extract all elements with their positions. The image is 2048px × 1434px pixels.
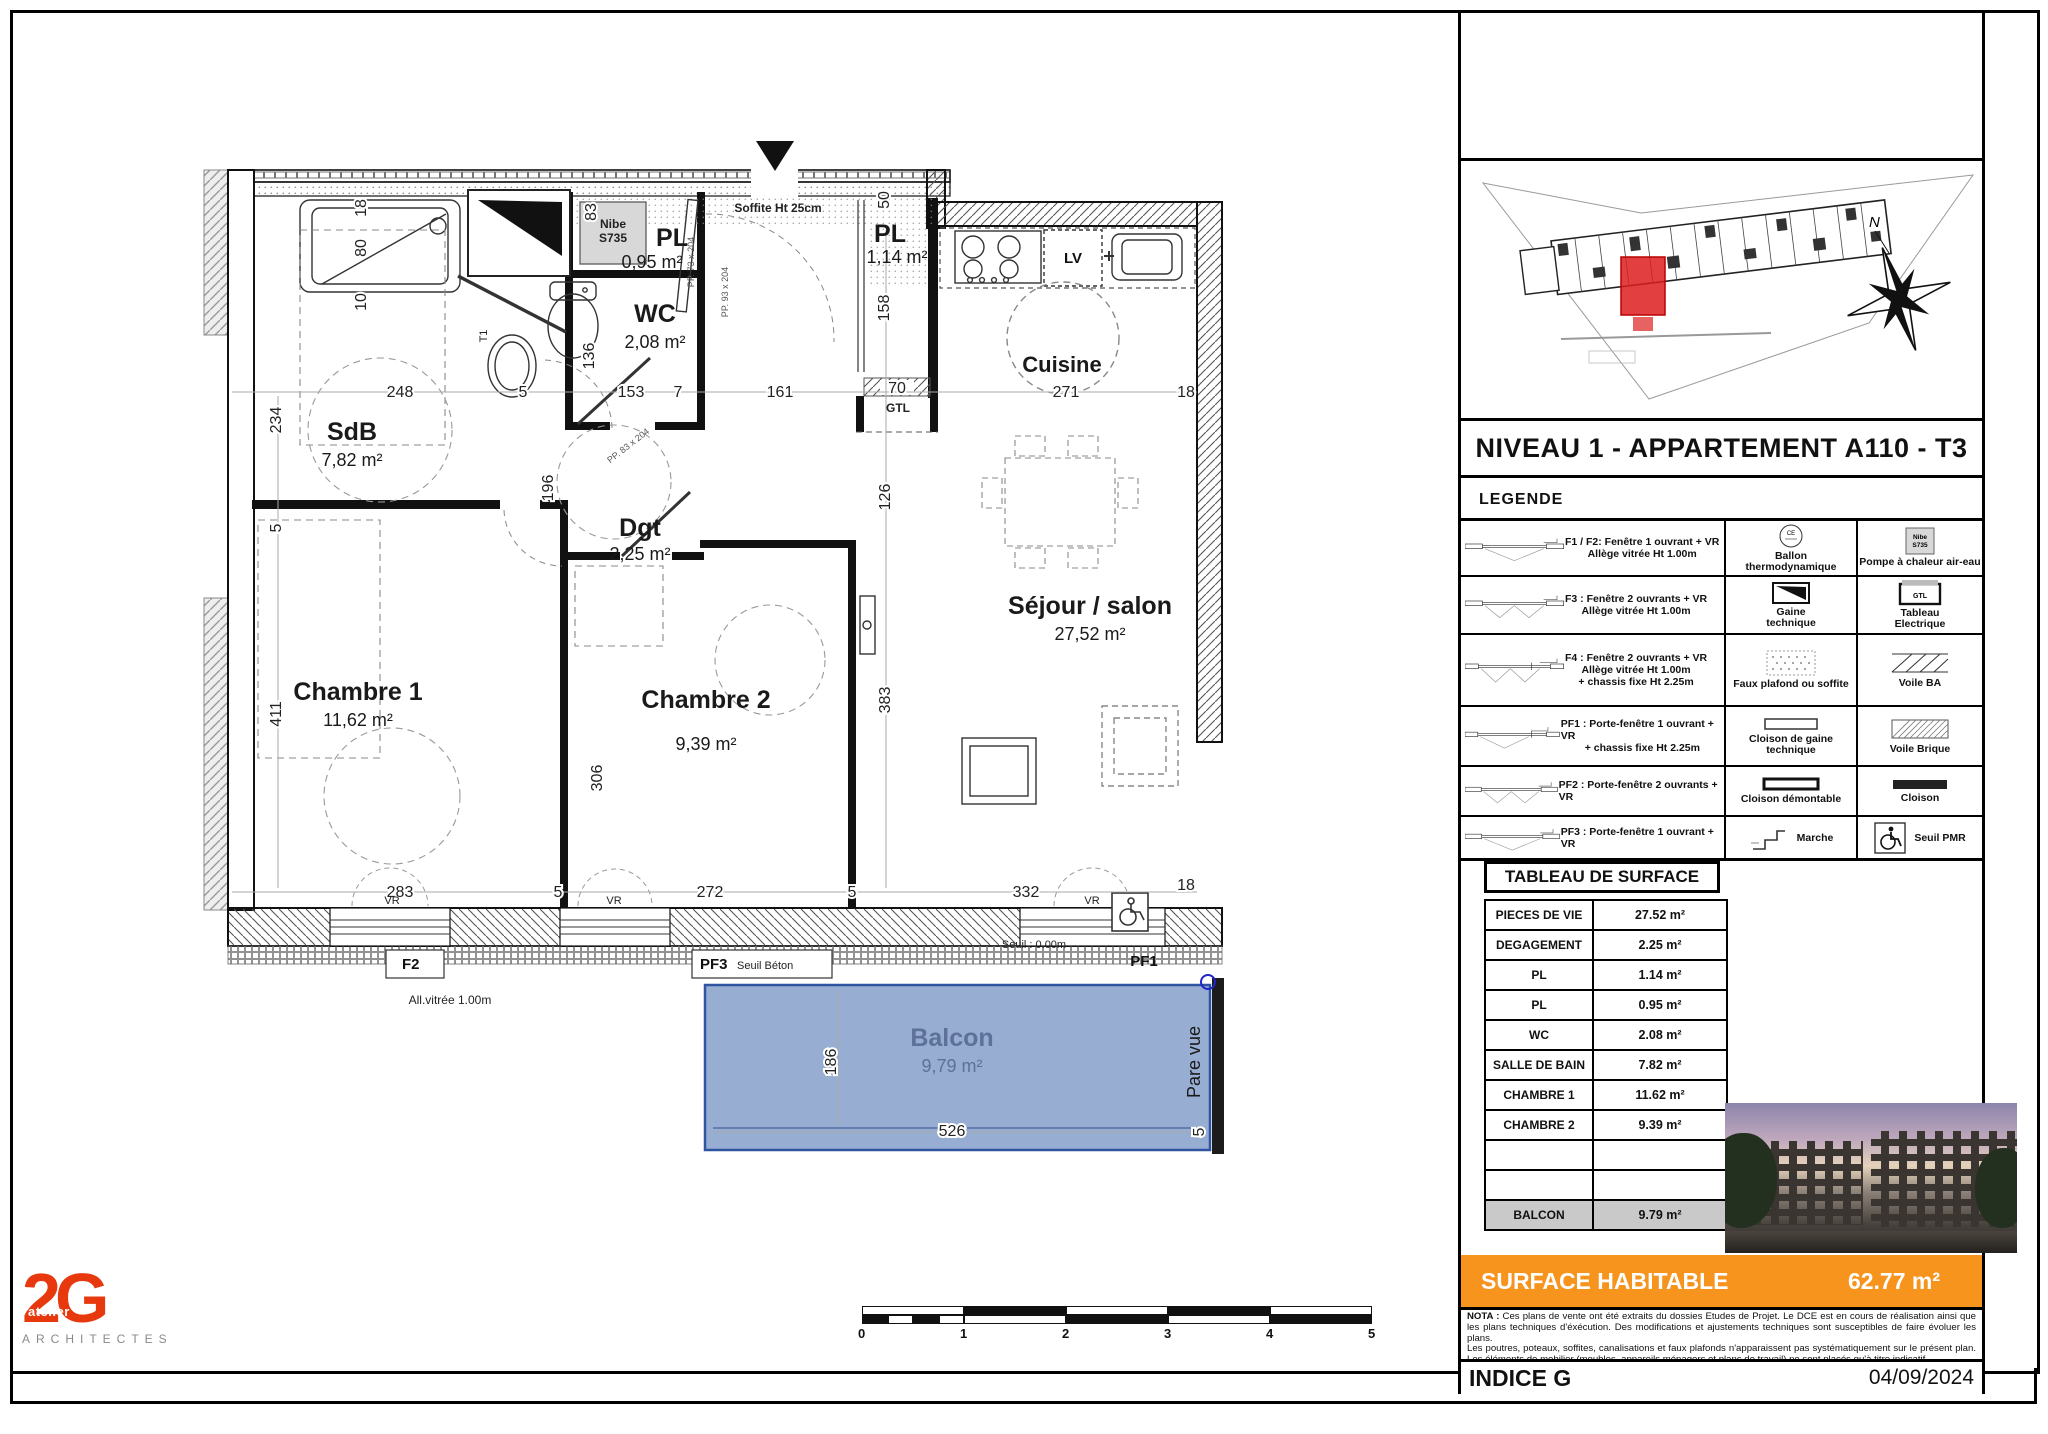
window-symbol-pf3 [1465,819,1561,857]
pp93-label: PP. 93 x 204 [720,267,730,317]
svg-text:7: 7 [674,384,683,401]
title-block: N NIVEAU 1 - APPARTEMENT A110 - T3 LEGEN… [1458,10,1985,1394]
window-symbol-pf1 [1465,716,1561,756]
svg-text:10: 10 [353,293,370,311]
nota: NOTA : Ces plans de vente ont été extrai… [1461,1307,1982,1359]
pare-vue-label: Pare vue [1184,1026,1204,1098]
tv-unit [860,596,875,654]
sheet-title: NIVEAU 1 - APPARTEMENT A110 - T3 [1461,418,1982,478]
room-sdb: SdB [327,418,377,446]
svg-text:136: 136 [581,343,598,370]
table-row: PIECES DE VIE27.52 m² [1486,901,1726,931]
room-wc: WC [634,300,676,328]
building-footprint [1519,200,1891,298]
svg-text:126: 126 [877,484,894,511]
svg-text:158: 158 [876,295,893,322]
svg-text:271: 271 [1053,384,1080,401]
pp83-label: PP. 83 x 204 [605,426,651,465]
svg-text:161: 161 [767,384,794,401]
voile-ba-icon [1890,650,1950,676]
svg-text:PF3: PF3 [700,956,728,973]
scale-bar-labels: 0 1 2 3 4 5 [862,1326,1372,1344]
dims-top-row: 248 5 153 7 161 70 271 18 [387,380,1195,401]
svg-text:306: 306 [589,765,606,792]
nibe-label-2: S735 [599,231,627,245]
svg-text:411: 411 [268,701,285,727]
soffite-label: Soffite Ht 25cm [734,201,821,215]
window-f2 [330,908,450,946]
table-row [1486,1141,1726,1171]
unit-highlight [1621,257,1665,315]
ballon-icon: CE [1776,523,1806,549]
window-pf3 [560,908,670,946]
table-row: SALLE DE BAIN7.82 m² [1486,1051,1726,1081]
pp73-label: PP. 73 x 204 [686,237,696,287]
date-label: 04/09/2024 [1869,1366,1974,1390]
t1-label: T1 [478,330,490,343]
legend-row: F4 : Fenêtre 2 ouvrants + VRAllège vitré… [1461,633,1982,705]
svg-text:186: 186 [823,1049,840,1076]
room-sejour: Séjour / salon [1008,592,1172,620]
svg-text:196: 196 [540,475,557,502]
room-chambre2: Chambre 2 [641,686,770,714]
pare-vue-screen [1212,978,1224,1154]
washbasin [488,335,536,397]
scale-bar: 0 1 2 3 4 5 [862,1306,1372,1344]
logo-2g: 2G [22,1268,173,1328]
room-pl-entry: PL [874,220,906,248]
cloison-demontable-icon [1762,776,1820,792]
svg-text:153: 153 [618,384,645,401]
room-chambre1-area: 11,62 m² [323,710,393,730]
seuil-pmr-icon [1874,822,1906,854]
svg-text:383: 383 [877,687,894,714]
surface-habitable-bar: SURFACE HABITABLE 62.77 m² [1461,1255,1982,1307]
svg-text:18: 18 [1177,877,1195,894]
svg-text:50: 50 [876,191,893,209]
building-photo [1725,1103,2017,1253]
legend-row: F3 : Fenêtre 2 ouvrants + VRAllège vitré… [1461,575,1982,633]
entry-arrow-icon [756,141,794,171]
svg-text:70: 70 [888,380,906,397]
table-row: PL0.95 m² [1486,991,1726,1021]
legend-title: LEGENDE [1479,491,1563,509]
pac-icon: NibeS735 [1903,527,1937,555]
gaine-icon [1771,581,1811,605]
gtl-icon: GTL [1898,580,1942,606]
svg-text:248: 248 [387,384,414,401]
vr-label-3: VR [1084,895,1099,907]
indice-label: INDICE G [1469,1365,1571,1392]
room-wc-area: 2,08 m² [624,332,685,352]
nibe-label-1: Nibe [600,217,626,231]
north-label: N [1869,214,1880,231]
cuisine-table [1007,282,1119,394]
cloison-gaine-icon [1763,716,1819,732]
table-row: PL1.14 m² [1486,961,1726,991]
svg-text:Nibe: Nibe [1913,534,1927,541]
legend-grid: F1 / F2: Fenêtre 1 ouvrant + VRAllège vi… [1461,518,1982,861]
page-border-right-ext [2034,1368,2037,1404]
legend-row: PF2 : Porte-fenêtre 2 ouvrants + VR Cloi… [1461,765,1982,815]
nota-bold: NOTA : [1467,1311,1499,1322]
room-pl-small-area: 0,95 m² [621,252,682,272]
kitchen-sink [1104,234,1182,280]
table-row: CHAMBRE 111.62 m² [1486,1081,1726,1111]
window-symbol-f4 [1465,647,1565,693]
table-row [1486,1171,1726,1201]
svg-text:332: 332 [1013,884,1040,901]
seuil-zero-label: Seuil : 0.00m [1002,939,1066,951]
svg-text:5: 5 [268,523,285,532]
room-chambre1: Chambre 1 [293,678,422,706]
voile-brique-icon [1890,716,1950,742]
svg-text:F2: F2 [402,956,420,973]
faux-plafond-icon [1765,649,1817,677]
table-row: DEGAGEMENT2.25 m² [1486,931,1726,961]
svg-text:80: 80 [353,239,370,257]
svg-text:5: 5 [519,384,528,401]
legend-row: F1 / F2: Fenêtre 1 ouvrant + VRAllège vi… [1461,518,1982,575]
surface-table-header: TABLEAU DE SURFACE [1484,861,1720,893]
svg-text:5: 5 [848,884,857,901]
logo-atelier: atelier [28,1304,70,1319]
marche-icon [1749,823,1789,853]
svg-text:272: 272 [697,884,724,901]
legend-row: PF3 : Porte-fenêtre 1 ouvrant + VR March… [1461,815,1982,861]
dims-bottom-row: 283 5 272 5 332 18 [387,877,1195,901]
indice-row: INDICE G 04/09/2024 [1461,1359,1982,1394]
table-row: WC2.08 m² [1486,1021,1726,1051]
coffee-table [962,738,1036,804]
svg-text:S735: S735 [1912,542,1928,549]
drawing-sheet: SdB 7,82 m² PL 0,95 m² WC 2,08 m² PL 1,1… [0,0,2048,1434]
wheelchair-icon [1112,893,1148,931]
room-balcon-area: 9,79 m² [921,1056,982,1076]
svg-text:Seuil Béton: Seuil Béton [737,960,793,972]
site-plan: N [1461,161,1982,418]
pf1-label: PF1 [1130,953,1158,970]
shower [300,200,460,292]
room-pl-small: PL [656,224,688,252]
room-balcon: Balcon [910,1024,993,1052]
svg-text:GTL: GTL [1913,593,1928,600]
svg-text:5: 5 [1191,1127,1208,1136]
legend-row: PF1 : Porte-fenêtre 1 ouvrant + VR+ chas… [1461,705,1982,765]
logo-architectes: ARCHITECTES [22,1332,173,1346]
svg-text:5: 5 [554,884,563,901]
room-sdb-area: 7,82 m² [321,450,382,470]
surface-habitable-value: 62.77 m² [1848,1268,1940,1295]
window-symbol-f3 [1465,585,1565,625]
scale-bar-row-bottom [862,1315,1372,1324]
svg-text:18: 18 [353,199,370,217]
window-symbol-pf2 [1465,771,1559,811]
room-dgt-area: 2,25 m² [609,544,670,564]
room-pl-entry-area: 1,14 m² [866,247,927,267]
gtl-label: GTL [886,401,910,415]
page-border-bottom [10,1401,2037,1404]
room-dgt: Dgt [619,514,661,542]
room-cuisine: Cuisine [1022,352,1101,377]
svg-text:234: 234 [268,407,285,434]
scale-bar-row-top [862,1306,1372,1315]
svg-text:83: 83 [583,203,600,221]
architect-logo: 2G atelier ARCHITECTES [22,1268,173,1346]
vr-label-1: VR [384,895,399,907]
svg-text:All.vitrée 1.00m: All.vitrée 1.00m [409,993,492,1007]
surface-habitable-label: SURFACE HABITABLE [1481,1268,1728,1295]
room-chambre2-area: 9,39 m² [675,734,736,754]
hob [955,231,1041,283]
svg-text:526: 526 [939,1123,966,1140]
room-sejour-area: 27,52 m² [1054,624,1125,644]
table-row: CHAMBRE 29.39 m² [1486,1111,1726,1141]
cloison-icon [1891,777,1949,791]
surface-table: PIECES DE VIE27.52 m² DEGAGEMENT2.25 m² … [1484,899,1728,1231]
gaine-technique-icon [468,190,570,276]
table-row-balcon: BALCON9.79 m² [1486,1201,1726,1229]
vr-label-2: VR [606,895,621,907]
armchair [1102,706,1178,786]
svg-text:18: 18 [1177,384,1195,401]
page-border-left-ext [10,1368,13,1404]
dining-set [982,436,1138,568]
lv-label: LV [1064,250,1082,267]
sdb-door [458,276,566,332]
window-symbol-f1 [1465,528,1565,568]
svg-text:CE: CE [1787,531,1795,537]
floor-plan: SdB 7,82 m² PL 0,95 m² WC 2,08 m² PL 1,1… [0,0,1456,1250]
